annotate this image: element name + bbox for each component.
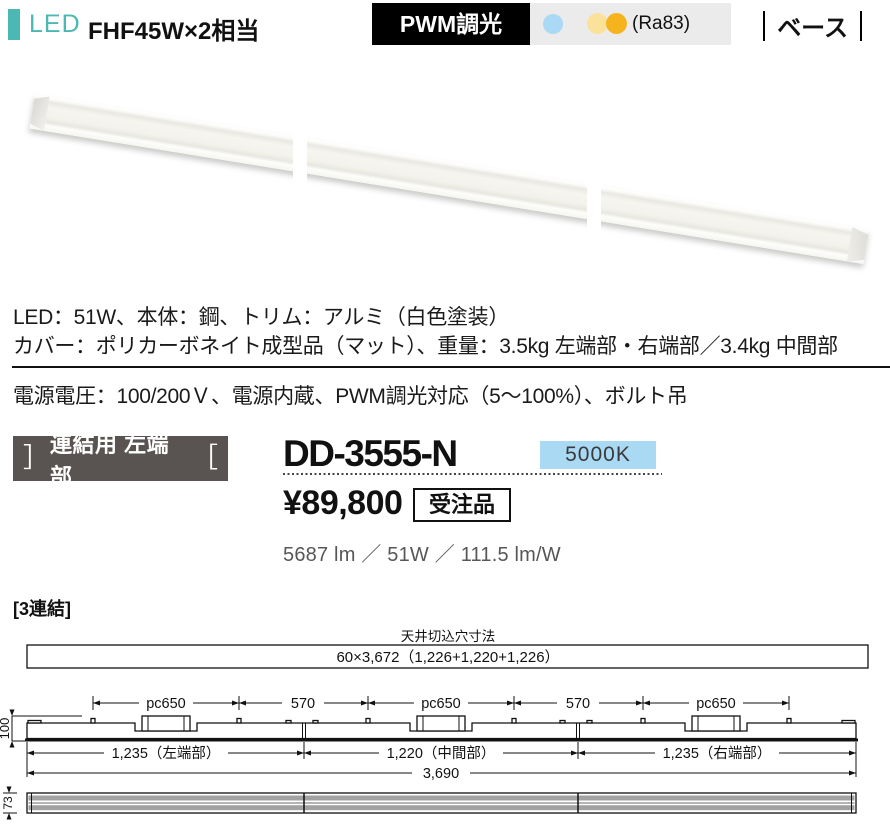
pitch-dim: pc650 [696, 696, 736, 712]
color-dot-amber-icon [606, 13, 627, 34]
type-badge-label: 連結用 左端部 [50, 427, 191, 491]
pitch-dim: 570 [566, 696, 590, 712]
divider-bar-icon [763, 11, 765, 41]
led-label: LED [29, 10, 81, 39]
photo-left-section [10, 57, 293, 278]
height-dim-value: 100 [0, 718, 12, 740]
divider-line [12, 366, 890, 368]
pwm-dimming-badge: PWM調光 [372, 3, 530, 45]
pitch-dimension-row: pc650 570 pc650 570 pc650 [93, 696, 789, 712]
pitch-dim: pc650 [146, 696, 186, 712]
photo-right-section [601, 57, 878, 278]
pitch-dim: pc650 [421, 696, 461, 712]
type-badge: ］ 連結用 左端部 ［ [13, 436, 228, 481]
spec-power: 電源電圧：100/200Ｖ、電源内蔵、PWM調光対応（5～100%）、ボルト吊 [13, 380, 687, 410]
pitch-dim: 570 [291, 696, 315, 712]
wattage-equivalent: FHF45W×2相当 [88, 11, 259, 46]
category-label: ベース [763, 8, 862, 43]
fixture-side-profile [25, 716, 858, 742]
color-dot-5000k-icon [543, 14, 563, 34]
bracket-right: ［ [191, 445, 218, 472]
spec-cover-weight: カバー：ポリカーボネイト成型品（マット）、重量：3.5kg 左端部・右端部／3.… [13, 330, 838, 360]
section-dim: 1,235（左端部） [112, 745, 221, 762]
model-number: DD-3555-N [283, 433, 457, 475]
diagram-title: [3連結] [13, 598, 71, 619]
color-dot-warm-icon [587, 13, 608, 34]
divider-bar-icon [860, 11, 862, 41]
total-dim-value: 3,690 [423, 766, 459, 782]
dimension-diagram: [3連結] 天井切込穴寸法 60×3,672（1,226+1,220+1,226… [0, 592, 890, 838]
bottom-height-dim-value: 73 [1, 796, 15, 810]
price: ¥89,800 [283, 484, 402, 523]
cri-value: (Ra83) [632, 13, 690, 35]
cutout-dimension: 60×3,672（1,226+1,220+1,226） [336, 649, 559, 666]
color-temp-panel: (Ra83) [530, 3, 731, 45]
bracket-left: ］ [23, 445, 50, 472]
led-accent-mark [8, 9, 20, 40]
catalog-page: LED FHF45W×2相当 PWM調光 (Ra83) ベース LED：51W、… [0, 0, 890, 838]
fixture-image [601, 94, 869, 264]
section-dim: 1,220（中間部） [387, 745, 496, 762]
category-text: ベース [777, 8, 848, 43]
section-dim: 1,235（右端部） [663, 745, 772, 762]
performance-specs: 5687 lm ／ 51W ／ 111.5 lm/W [283, 538, 561, 567]
order-item-badge: 受注品 [413, 488, 511, 522]
bottom-height-dimension: 73 [1, 787, 17, 820]
photo-strip [0, 57, 890, 278]
photo-middle-section [307, 57, 587, 278]
fixture-image [29, 94, 293, 264]
fixture-bottom-view [27, 793, 856, 813]
cutout-label: 天井切込穴寸法 [401, 629, 496, 644]
fixture-image [307, 94, 587, 264]
spec-materials: LED：51W、本体：鋼、トリム：アルミ（白色塗装） [13, 301, 509, 331]
color-temp-badge: 5000K [540, 441, 656, 469]
total-dimension-row: 3,690 [27, 766, 856, 782]
dotted-separator [283, 473, 662, 475]
